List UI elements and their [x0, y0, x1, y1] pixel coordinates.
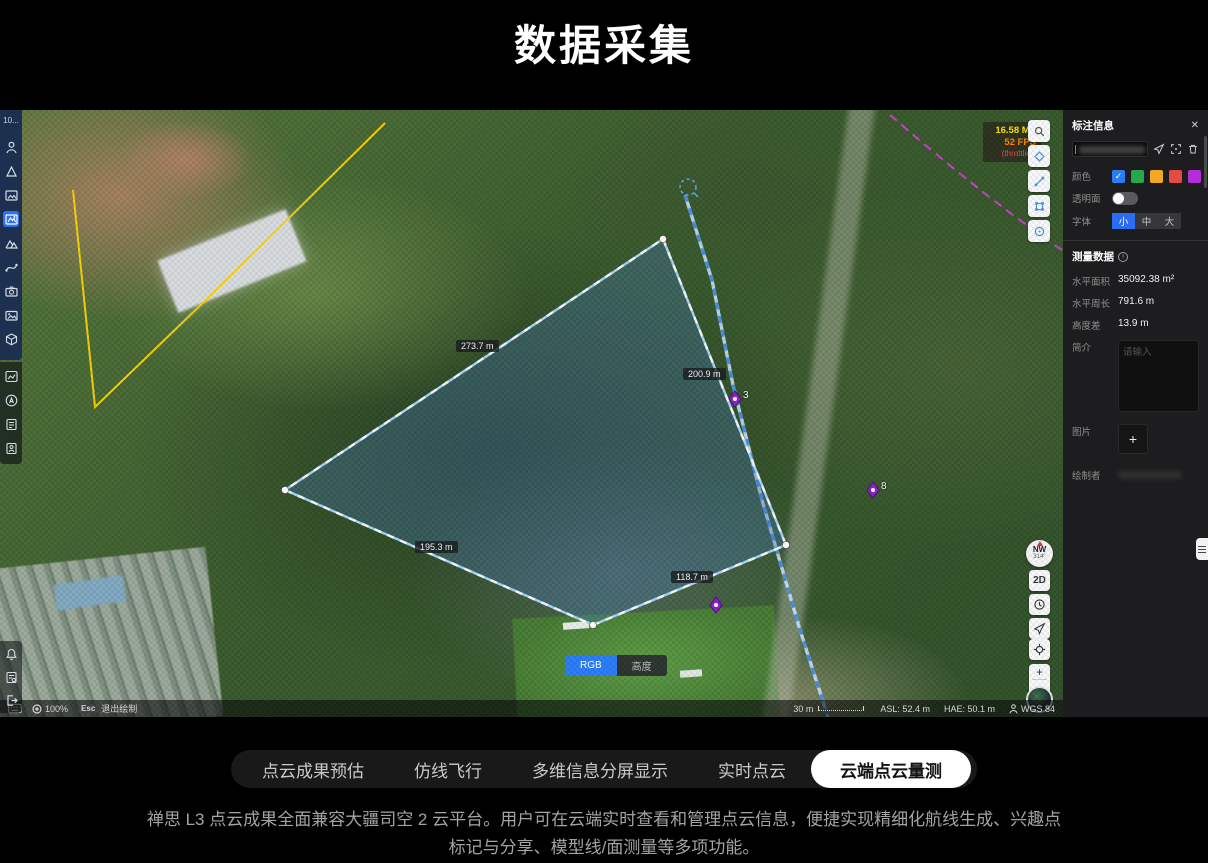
yellow-boundary-line	[73, 123, 385, 407]
scale-bar	[818, 706, 864, 711]
flyto-icon[interactable]	[1153, 143, 1165, 155]
add-image-button[interactable]: +	[1118, 424, 1148, 454]
measure-data-title: 测量数据	[1072, 249, 1114, 264]
font-size-large[interactable]: 大	[1158, 213, 1181, 229]
curve-icon[interactable]	[3, 259, 19, 275]
measure-area-icon[interactable]	[3, 211, 19, 227]
creator-label: 绘制者	[1072, 468, 1118, 482]
color-swatch-red[interactable]	[1169, 170, 1182, 183]
asl-readout: ASL: 52.4 m	[880, 704, 930, 714]
document-edit-icon[interactable]	[3, 416, 19, 432]
edge-length-label: 195.3 m	[415, 541, 458, 553]
transparent-face-label: 透明面	[1072, 191, 1112, 205]
polygon-tool-button[interactable]	[1028, 195, 1050, 217]
image-icon[interactable]	[3, 307, 19, 323]
color-swatch-purple[interactable]	[1188, 170, 1201, 183]
edge-length-label: 273.7 m	[456, 340, 499, 352]
compass-degrees: 314°	[1026, 554, 1053, 561]
datum-readout: WGS 84	[1009, 704, 1055, 714]
project-label-truncated: 10...	[3, 116, 19, 125]
zoom-in-button[interactable]: +	[1029, 664, 1050, 679]
tab-cloud-measurement[interactable]: 云端点云量测	[811, 750, 971, 788]
left-toolbar: 10...	[0, 110, 22, 717]
info-icon[interactable]: i	[1118, 252, 1128, 262]
cube-3d-icon[interactable]	[3, 331, 19, 347]
chart-icon[interactable]	[3, 368, 19, 384]
page: 数据采集	[0, 0, 1208, 863]
redacted-creator	[1118, 471, 1182, 479]
id-card-icon[interactable]	[3, 440, 19, 456]
view-mode-2d-button[interactable]: 2D	[1029, 570, 1050, 591]
divider	[1063, 240, 1208, 241]
hae-readout: HAE: 50.1 m	[944, 704, 995, 714]
feature-description: 禅思 L3 点云成果全面兼容大疆司空 2 云平台。用户可在云端实时查看和管理点云…	[139, 806, 1069, 861]
tab-simulated-flight[interactable]: 仿线飞行	[389, 750, 507, 788]
feature-tabs: 点云成果预估 仿线飞行 多维信息分屏显示 实时点云 云端点云量测	[231, 750, 977, 788]
annotation-name-input[interactable]	[1072, 141, 1148, 157]
map-status-bar: 100% Esc 退出绘制 30 m ASL: 52.4 m HAE: 50.1…	[0, 700, 1063, 717]
font-size-label: 字体	[1072, 214, 1112, 228]
stage: 273.7 m 200.9 m 195.3 m 118.7 m 3 8 16.5…	[0, 110, 1208, 717]
airplane-icon[interactable]	[1029, 618, 1050, 639]
annotation-a-icon[interactable]	[3, 392, 19, 408]
locate-icon[interactable]	[1029, 639, 1050, 660]
layer-toggle: RGB 高度	[565, 655, 667, 676]
circle-tool-button[interactable]	[1028, 220, 1050, 242]
scale-readout: 30 m	[793, 704, 866, 714]
user-icon[interactable]	[3, 139, 19, 155]
zoom-readout: 100%	[32, 704, 68, 714]
camera-icon[interactable]	[3, 283, 19, 299]
search-tool-button[interactable]	[1028, 120, 1050, 142]
text-cursor	[1075, 145, 1076, 154]
panel-title: 标注信息	[1072, 118, 1114, 133]
focus-icon[interactable]	[1170, 143, 1182, 155]
line-tool-button[interactable]	[1028, 170, 1050, 192]
terrain-marker-icon[interactable]	[3, 163, 19, 179]
color-swatch-green[interactable]	[1131, 170, 1144, 183]
measure-row: 水平周长 791.6 m	[1063, 292, 1208, 314]
bell-icon[interactable]	[3, 646, 19, 662]
map-viewport[interactable]: 273.7 m 200.9 m 195.3 m 118.7 m 3 8 16.5…	[0, 110, 1063, 717]
annotation-panel: 标注信息 ✕ 颜色 ✓	[1063, 110, 1208, 717]
esc-key-badge: Esc	[78, 704, 98, 713]
measure-row: 水平面积 35092.38 m²	[1063, 270, 1208, 292]
description-textarea[interactable]	[1118, 340, 1199, 412]
height-diff-value: 13.9 m	[1118, 318, 1149, 332]
font-size-medium[interactable]: 中	[1135, 213, 1158, 229]
measurement-polygon	[285, 239, 786, 625]
exit-icon[interactable]	[3, 692, 19, 708]
lasso-icon	[680, 179, 698, 197]
edge-length-label: 200.9 m	[683, 368, 726, 380]
image-label: 图片	[1072, 424, 1118, 438]
panel-scrollbar[interactable]	[1204, 136, 1207, 188]
tab-realtime-pointcloud[interactable]: 实时点云	[693, 750, 811, 788]
color-swatch-blue[interactable]: ✓	[1112, 170, 1125, 183]
north-needle	[1037, 541, 1043, 546]
layer-option-rgb[interactable]: RGB	[565, 655, 617, 676]
color-swatch-yellow[interactable]	[1150, 170, 1163, 183]
drawer-handle[interactable]	[1196, 538, 1208, 560]
mountains-icon[interactable]	[3, 235, 19, 251]
edge-length-label: 118.7 m	[671, 571, 713, 583]
point-tool-button[interactable]	[1028, 145, 1050, 167]
font-size-segmented: 小 中 大	[1112, 213, 1181, 229]
font-size-small[interactable]: 小	[1112, 213, 1135, 229]
draw-tools	[1028, 120, 1050, 242]
close-icon[interactable]: ✕	[1191, 120, 1199, 131]
description-label: 简介	[1072, 340, 1118, 354]
horizontal-area-value: 35092.38 m²	[1118, 274, 1174, 288]
color-label: 颜色	[1072, 169, 1112, 183]
tab-pointcloud-preview[interactable]: 点云成果预估	[237, 750, 389, 788]
layer-option-height[interactable]: 高度	[617, 655, 667, 676]
measure-row: 高度差 13.9 m	[1063, 314, 1208, 336]
clock-icon[interactable]	[1029, 594, 1050, 615]
horizontal-perimeter-value: 791.6 m	[1118, 296, 1154, 310]
trash-icon[interactable]	[1187, 143, 1199, 155]
measurement-overlay	[0, 110, 1063, 717]
compass[interactable]: NW 314°	[1026, 540, 1053, 567]
exit-draw-hint[interactable]: Esc 退出绘制	[78, 702, 137, 715]
photo-frame-icon[interactable]	[3, 187, 19, 203]
redacted-name	[1079, 146, 1145, 154]
document-settings-icon[interactable]	[3, 669, 19, 685]
tab-multidim-splitscreen[interactable]: 多维信息分屏显示	[507, 750, 693, 788]
color-swatches: ✓	[1112, 170, 1201, 183]
compass-direction: NW	[1026, 546, 1053, 554]
transparent-face-toggle[interactable]	[1112, 192, 1138, 205]
page-title: 数据采集	[0, 12, 1208, 73]
